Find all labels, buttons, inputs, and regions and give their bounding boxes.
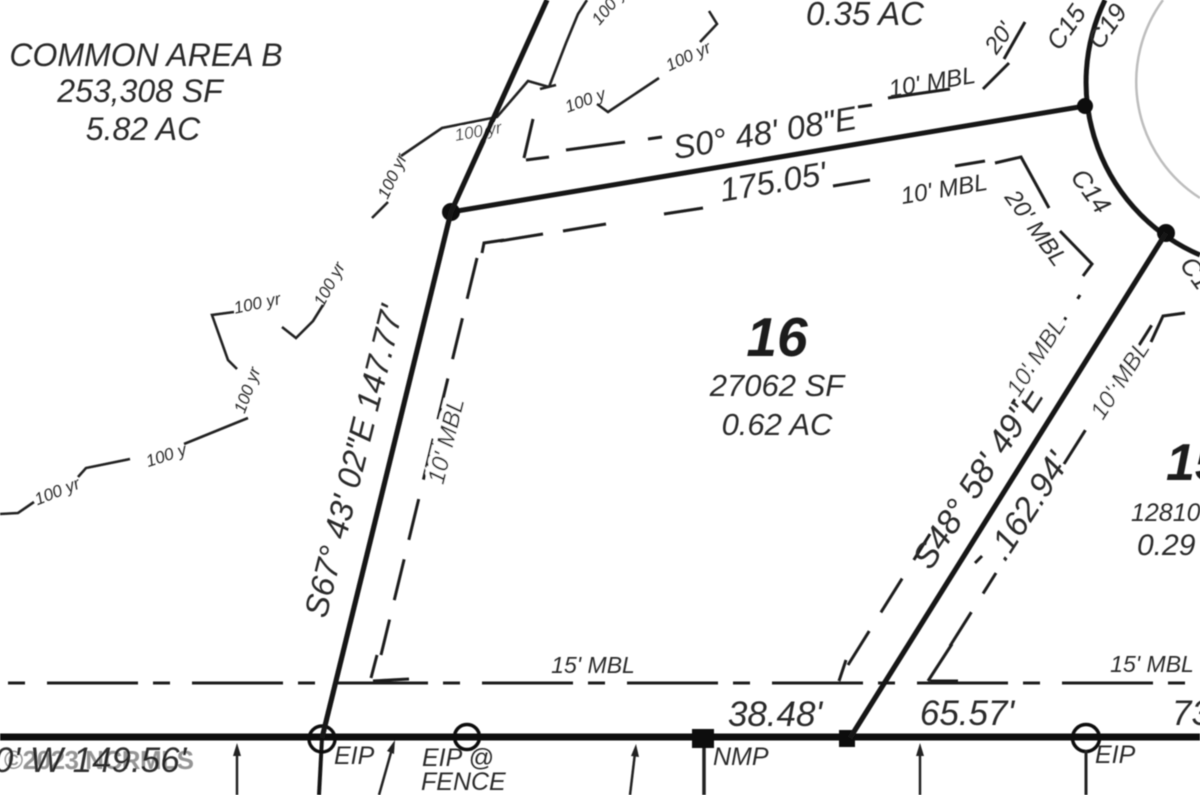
svg-text:27062 SF: 27062 SF	[709, 368, 846, 403]
svg-text:0.62 AC: 0.62 AC	[722, 407, 833, 442]
svg-text:15' MBL: 15' MBL	[1110, 651, 1194, 677]
svg-text:S0° 48' 08"E: S0° 48' 08"E	[670, 99, 860, 166]
svg-text:100 yr: 100 yr	[588, 0, 634, 29]
svg-text:10' MBL: 10' MBL	[887, 62, 978, 103]
svg-text:C1: C1	[1174, 251, 1200, 296]
svg-text:100 yr: 100 yr	[453, 118, 504, 145]
svg-text:10' MBL: 10' MBL	[423, 396, 470, 487]
svg-text:16: 16	[746, 306, 808, 368]
svg-text:NMP: NMP	[713, 743, 769, 771]
svg-text:100 yr: 100 yr	[232, 289, 283, 318]
svg-text:73.: 73.	[1172, 694, 1200, 733]
svg-text:65.57': 65.57'	[920, 694, 1016, 733]
svg-text:EIP: EIP	[334, 742, 375, 770]
svg-text:100 yr: 100 yr	[663, 37, 715, 75]
svg-text:10' MBL: 10' MBL	[899, 169, 990, 210]
svg-text:0' W 149.56': 0' W 149.56'	[0, 741, 188, 780]
svg-text:S67° 43' 02"E 147.77': S67° 43' 02"E 147.77'	[297, 300, 411, 621]
svg-text:C15: C15	[1040, 0, 1092, 55]
svg-text:38.48': 38.48'	[728, 695, 824, 734]
svg-text:COMMON AREA B: COMMON AREA B	[9, 37, 282, 73]
svg-text:0.29 A: 0.29 A	[1137, 529, 1200, 562]
svg-text:EIP: EIP	[1095, 741, 1136, 769]
svg-text:253,308 SF: 253,308 SF	[56, 73, 225, 109]
svg-text:FENCE: FENCE	[421, 768, 506, 795]
svg-text:100 yr: 100 yr	[374, 150, 412, 202]
svg-text:15: 15	[1166, 434, 1200, 492]
svg-text:20': 20'	[979, 17, 1020, 60]
svg-text:100 yr: 100 yr	[230, 363, 264, 415]
svg-text:100 yr: 100 yr	[310, 258, 350, 310]
svg-text:5.82 AC: 5.82 AC	[86, 111, 201, 147]
svg-text:20' MBL: 20' MBL	[998, 184, 1072, 271]
svg-text:10' MBL: 10' MBL	[1001, 313, 1071, 401]
svg-text:100 y: 100 y	[562, 84, 609, 117]
svg-text:0.35 AC: 0.35 AC	[806, 0, 925, 32]
svg-text:100 yr: 100 yr	[32, 473, 84, 509]
svg-text:100 y: 100 y	[143, 440, 190, 471]
svg-text:15' MBL: 15' MBL	[551, 652, 635, 678]
svg-text:12810 SF: 12810 SF	[1131, 499, 1200, 527]
